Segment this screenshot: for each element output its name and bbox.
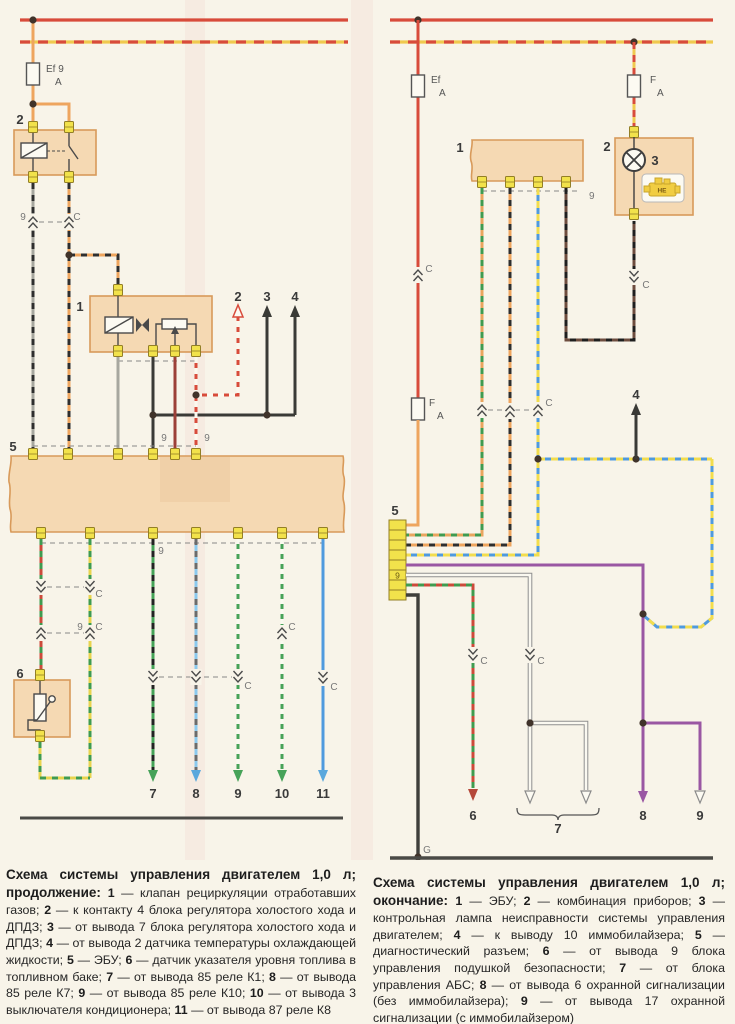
egr-valve-number: 1 <box>76 299 83 314</box>
ecu-pin <box>234 528 243 539</box>
junction-dot <box>534 455 541 462</box>
junction-dot <box>149 411 156 418</box>
egr-pin <box>114 346 123 357</box>
ecu-pin <box>192 449 201 460</box>
ecu-number: 1 <box>456 140 463 155</box>
fuse-f2-amp: A <box>437 411 444 422</box>
arrow-11-head <box>318 770 328 782</box>
connector-chevron <box>413 267 424 283</box>
cluster-pin <box>630 209 639 220</box>
right-wiring-diagram: Ef A C F A 1 9 2 F A 3 HE C <box>367 0 735 860</box>
fuel-sensor-number: 6 <box>16 666 23 681</box>
arrow-2-open <box>233 305 243 317</box>
arrow-3-head <box>262 305 272 317</box>
wire-white-core <box>406 575 586 790</box>
diag-pin-9-label: 9 <box>395 571 400 581</box>
left-wiring-diagram: Ef 9 A 2 9 C 1 <box>0 0 367 860</box>
fuse-f1-label: F <box>650 75 656 86</box>
arrow-10-label: 10 <box>275 786 289 801</box>
junction-dot <box>192 391 199 398</box>
wire-tag: C <box>73 212 80 223</box>
arrow-9-head <box>233 770 243 782</box>
wire-blue-yellow-base <box>406 188 712 627</box>
junction-dot <box>639 610 646 617</box>
ecu-pin <box>478 177 487 188</box>
connector-chevron <box>318 670 329 686</box>
fuel-sensor-pin <box>36 731 45 742</box>
fuse-f2 <box>412 398 425 420</box>
lamp-number: 3 <box>651 153 658 168</box>
wire-tag: C <box>425 264 432 275</box>
left-caption: Схема системы управления двигателем 1,0 … <box>6 866 356 1018</box>
arrow-4-label: 4 <box>632 387 640 402</box>
ecu-pin <box>562 177 571 188</box>
arrow-8-head <box>638 791 648 803</box>
wire-tag: C <box>95 589 102 600</box>
ecu-pin <box>319 528 328 539</box>
wire-tag: 9 <box>20 212 26 223</box>
arrow-9-label: 9 <box>234 786 241 801</box>
arrow-7-label: 7 <box>554 821 561 836</box>
wire-tag: 9 <box>589 191 595 202</box>
egr-pin <box>149 346 158 357</box>
arrow-4-head <box>290 305 300 317</box>
wire-green-white-dash <box>238 539 282 771</box>
wire-blue-yellow-dash <box>406 188 712 627</box>
ecu-number: 5 <box>9 439 16 454</box>
wire-tag: C <box>480 656 487 667</box>
arrow-7a-open <box>525 791 535 803</box>
connector-chevron <box>85 625 96 641</box>
ecu-box <box>470 140 583 181</box>
wire-tag: C <box>642 280 649 291</box>
relay-pin <box>65 172 74 183</box>
wire-black-ground <box>406 595 418 856</box>
connector-chevron <box>36 579 47 595</box>
wire-tag: C <box>288 622 295 633</box>
egr-pin <box>171 346 180 357</box>
wire-red-green-dash <box>406 585 473 788</box>
arrow-8-head <box>191 770 201 782</box>
wire-white-outline <box>406 575 586 790</box>
arrow-7-label: 7 <box>149 786 156 801</box>
ecu-pin <box>29 449 38 460</box>
connector-chevron <box>233 669 244 685</box>
arrow-11-label: 11 <box>316 786 330 801</box>
ecu-pin <box>149 528 158 539</box>
connector-chevron <box>477 402 488 418</box>
wire-tag: C <box>95 622 102 633</box>
right-caption: Схема системы управления двигателем 1,0 … <box>373 874 725 1024</box>
arrow-6-label: 6 <box>469 808 476 823</box>
connector-chevron <box>525 647 536 663</box>
ecu-pin <box>64 449 73 460</box>
wire-purple <box>406 565 700 792</box>
check-engine-icon: HE <box>642 174 684 202</box>
ecu-pin <box>534 177 543 188</box>
fuse-ef9-label: Ef 9 <box>46 64 64 75</box>
arrow-10-head <box>277 770 287 782</box>
wire-tag: 9 <box>77 622 83 633</box>
connector-chevron <box>533 402 544 418</box>
junction-dot <box>263 411 270 418</box>
arrow-7-head <box>148 770 158 782</box>
manual-page: Ef 9 A 2 9 C 1 <box>0 0 735 1024</box>
ecu-pin <box>506 177 515 188</box>
fuse-ef9-amp: A <box>55 77 62 88</box>
arrow-9-open <box>695 791 705 803</box>
wire-tag: C <box>545 398 552 409</box>
relay-pin <box>29 172 38 183</box>
wire-orange <box>406 420 418 525</box>
relay-2-number: 2 <box>16 112 23 127</box>
connector-chevron <box>277 625 288 641</box>
connector-chevron <box>629 269 640 285</box>
junction-dot <box>65 251 72 258</box>
junction-dot <box>29 100 36 107</box>
arrow-8-label: 8 <box>192 786 199 801</box>
ecu-pin <box>114 449 123 460</box>
cluster-number: 2 <box>603 139 610 154</box>
arrow-3-label: 3 <box>263 289 270 304</box>
connector-chevron <box>468 647 479 663</box>
ecu-pin <box>37 528 46 539</box>
wire-orange-black-base <box>406 188 510 545</box>
connector-chevron <box>191 669 202 685</box>
arrow-4-head <box>631 403 641 415</box>
ecu-pin <box>192 528 201 539</box>
ecu-pin <box>149 449 158 460</box>
diag-connector-number: 5 <box>391 503 398 518</box>
arrow-4-label: 4 <box>291 289 299 304</box>
fuse-f1-amp: A <box>657 88 664 99</box>
wire-tag: C <box>330 682 337 693</box>
connector-chevron <box>28 214 39 230</box>
wire-yellow-green-base <box>40 539 90 778</box>
relay-pin <box>65 122 74 133</box>
wire-tag: 9 <box>158 546 164 557</box>
wire-green-white-base <box>238 539 282 771</box>
connector-chevron <box>505 403 516 419</box>
wire-orange-black-dash <box>406 188 510 545</box>
connector-chevron <box>148 669 159 685</box>
arrow-6-head <box>468 789 478 801</box>
junction-dot <box>526 719 533 726</box>
ecu-pin <box>171 449 180 460</box>
wire-red-green-base <box>406 585 473 788</box>
egr-pin <box>114 285 123 296</box>
arrow-8-label: 8 <box>639 808 646 823</box>
fuse-ef-amp: A <box>439 88 446 99</box>
wire-tag: 9 <box>204 433 210 444</box>
arrow-7b-open <box>581 791 591 803</box>
egr-pin <box>192 346 201 357</box>
wire-yellow-green-dash <box>40 539 90 778</box>
wire-tag: C <box>244 681 251 692</box>
arrow-9-label: 9 <box>696 808 703 823</box>
ecu-shade <box>160 457 230 502</box>
fuse-f1 <box>628 75 641 97</box>
wire-tag: C <box>537 656 544 667</box>
arrow-2-label: 2 <box>234 289 241 304</box>
brace <box>517 808 599 820</box>
svg-text:HE: HE <box>657 188 667 195</box>
ground-label: G <box>423 845 431 856</box>
fuse-ef <box>412 75 425 97</box>
connector-chevron <box>85 579 96 595</box>
relay-pin <box>29 122 38 133</box>
fuse-ef9 <box>27 63 40 85</box>
fuse-f2-label: F <box>429 398 435 409</box>
fuel-sensor-pin <box>36 670 45 681</box>
ecu-pin <box>86 528 95 539</box>
diagnostic-connector <box>389 520 406 600</box>
connector-chevron <box>36 625 47 641</box>
junction-dot <box>639 719 646 726</box>
junction-dot <box>29 16 36 23</box>
cluster-pin <box>630 127 639 138</box>
wire-tag: 9 <box>161 433 167 444</box>
ecu-pin <box>278 528 287 539</box>
fuse-ef-label: Ef <box>431 75 441 86</box>
